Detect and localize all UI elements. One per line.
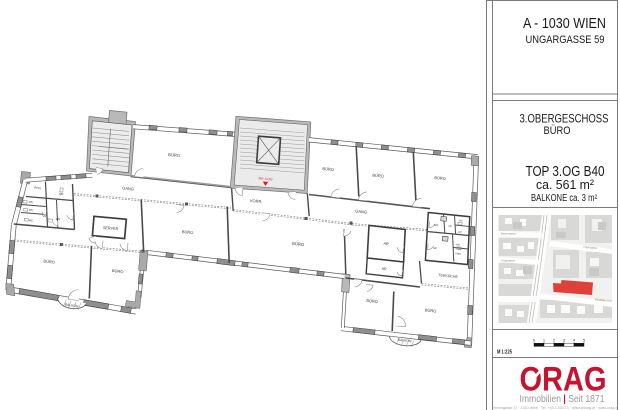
svg-text:BR: BR: [433, 247, 437, 250]
svg-text:WC: WC: [458, 231, 463, 234]
svg-text:WC: WC: [459, 219, 464, 222]
svg-text:PISS.: PISS.: [34, 186, 42, 191]
svg-text:A - 1030 WIEN: A - 1030 WIEN: [523, 16, 606, 32]
svg-text:BÜRO: BÜRO: [182, 229, 194, 235]
svg-text:2: 2: [553, 339, 555, 343]
svg-text:VORR.: VORR.: [250, 198, 263, 204]
svg-text:BÜRO: BÜRO: [544, 125, 571, 137]
svg-text:3.OBERGESCHOSS: 3.OBERGESCHOSS: [520, 112, 609, 126]
svg-text:AR: AR: [383, 242, 389, 247]
svg-text:PISS: PISS: [455, 252, 461, 256]
svg-text:BÜRO: BÜRO: [434, 175, 446, 181]
svg-text:WC: WC: [29, 218, 34, 222]
svg-text:BÜRO: BÜRO: [292, 241, 305, 247]
svg-text:Beatrixgasse: Beatrixgasse: [501, 232, 517, 236]
svg-text:WC: WC: [29, 200, 34, 204]
svg-text:1: 1: [543, 339, 545, 343]
svg-text:WR: WR: [56, 217, 61, 221]
svg-text:BÜRO: BÜRO: [43, 258, 55, 265]
svg-text:Ungargasse: Ungargasse: [501, 259, 516, 263]
svg-text:3: 3: [563, 339, 565, 343]
svg-text:BÜRO: BÜRO: [425, 307, 437, 313]
svg-text:BÜRO: BÜRO: [372, 172, 384, 178]
svg-text:BALKONE ca. 3 m²: BALKONE ca. 3 m²: [531, 193, 598, 204]
svg-text:Immobilien | Seit 1871: Immobilien | Seit 1871: [520, 394, 605, 405]
svg-text:M 1:225: M 1:225: [497, 350, 512, 356]
svg-text:BÜRO: BÜRO: [168, 152, 181, 158]
svg-text:AR: AR: [381, 267, 387, 271]
svg-text:ca. 561 m²: ca. 561 m²: [536, 177, 595, 192]
svg-text:WC: WC: [29, 208, 34, 212]
svg-text:WR: WR: [59, 192, 64, 196]
svg-text:VR: VR: [448, 225, 452, 228]
svg-text:BÜRO: BÜRO: [366, 298, 378, 304]
svg-text:UNGARGASSE 59: UNGARGASSE 59: [526, 34, 605, 46]
svg-text:WC: WC: [456, 243, 461, 246]
svg-text:TEEKÜCHE: TEEKÜCHE: [438, 273, 458, 279]
svg-text:GANG: GANG: [355, 208, 367, 214]
svg-text:GANG: GANG: [122, 186, 134, 192]
svg-text:BÜRO: BÜRO: [112, 268, 124, 275]
svg-text:VR: VR: [42, 214, 46, 218]
svg-text:4: 4: [573, 339, 575, 343]
svg-text:Herrengasse 17 · 1010 Wien · T: Herrengasse 17 · 1010 Wien · Tel. +43 1 …: [492, 406, 618, 410]
svg-text:WR: WR: [434, 224, 439, 227]
svg-text:5: 5: [583, 339, 585, 343]
svg-text:BÜRO: BÜRO: [322, 166, 334, 172]
svg-text:0: 0: [533, 339, 535, 343]
svg-text:ORAG: ORAG: [520, 361, 607, 399]
